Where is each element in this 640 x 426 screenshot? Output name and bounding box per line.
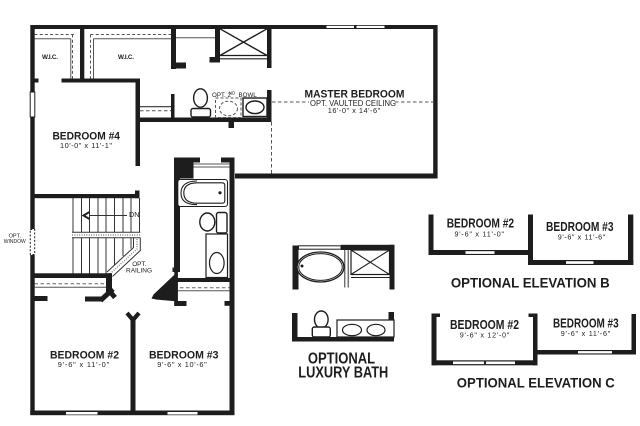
svg-text:9'-6" x 11'-0": 9'-6" x 11'-0" [58, 360, 110, 369]
svg-text:W.I.C.: W.I.C. [118, 54, 134, 61]
svg-text:DN: DN [129, 212, 140, 219]
svg-text:W.I.C.: W.I.C. [42, 54, 58, 61]
svg-text:10'-0" x 11'-1": 10'-0" x 11'-1" [60, 141, 112, 150]
svg-text:WINDOW: WINDOW [4, 239, 27, 245]
svg-text:RAILING: RAILING [126, 267, 152, 274]
svg-text:9'-6" x 11'-6": 9'-6" x 11'-6" [561, 329, 611, 338]
svg-text:9'-6" x 11'-6": 9'-6" x 11'-6" [558, 232, 606, 241]
svg-text:OPTIONAL ELEVATION B: OPTIONAL ELEVATION B [451, 276, 610, 291]
svg-text:9'-6" x 12'-0": 9'-6" x 12'-0" [460, 331, 510, 340]
svg-text:OPTIONAL ELEVATION C: OPTIONAL ELEVATION C [457, 376, 615, 391]
svg-text:LUXURY BATH: LUXURY BATH [298, 364, 388, 381]
svg-text:ND: ND [229, 91, 235, 96]
svg-text:9'-6" x 10'-6": 9'-6" x 10'-6" [157, 360, 207, 369]
svg-text:16'-0" x 14'-6": 16'-0" x 14'-6" [328, 106, 381, 115]
svg-text:9'-6" x 11'-0": 9'-6" x 11'-0" [455, 229, 505, 238]
